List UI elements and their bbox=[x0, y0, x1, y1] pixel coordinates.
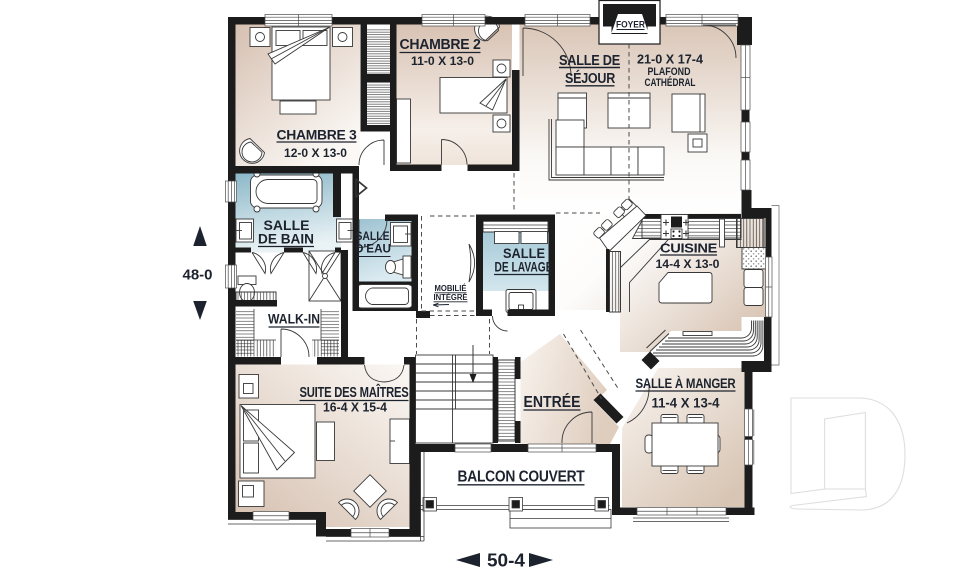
svg-text:14-4 X 13-0: 14-4 X 13-0 bbox=[656, 259, 720, 271]
svg-text:WALK-IN: WALK-IN bbox=[268, 311, 320, 327]
svg-text:CHAMBRE 3: CHAMBRE 3 bbox=[277, 128, 358, 143]
svg-text:48-0: 48-0 bbox=[183, 268, 213, 284]
svg-text:BALCON COUVERT: BALCON COUVERT bbox=[458, 469, 585, 486]
svg-text:ENTRÉE: ENTRÉE bbox=[524, 394, 581, 411]
svg-text:11-4 X 13-4: 11-4 X 13-4 bbox=[652, 396, 720, 411]
svg-text:DE BAIN: DE BAIN bbox=[258, 231, 314, 247]
svg-text:16-4 X 15-4: 16-4 X 15-4 bbox=[323, 401, 387, 415]
svg-text:INTÉGRÉ: INTÉGRÉ bbox=[434, 293, 469, 302]
svg-text:21-0 X 17-4: 21-0 X 17-4 bbox=[637, 52, 704, 67]
svg-text:50-4: 50-4 bbox=[487, 551, 525, 569]
svg-text:DE LAVAGE: DE LAVAGE bbox=[495, 259, 553, 275]
svg-text:CUISINE: CUISINE bbox=[660, 241, 718, 256]
svg-text:CHAMBRE 2: CHAMBRE 2 bbox=[400, 37, 481, 53]
svg-text:SUITE DES MAÎTRES: SUITE DES MAÎTRES bbox=[300, 383, 409, 401]
svg-text:SALLE À MANGER: SALLE À MANGER bbox=[636, 375, 736, 391]
svg-text:SALLE DE: SALLE DE bbox=[559, 53, 621, 69]
svg-text:MOBILIÉ: MOBILIÉ bbox=[435, 284, 468, 293]
svg-text:D'EAU: D'EAU bbox=[355, 242, 391, 256]
svg-text:11-0 X 13-0: 11-0 X 13-0 bbox=[411, 56, 474, 68]
svg-text:CATHÉDRAL: CATHÉDRAL bbox=[645, 76, 696, 89]
svg-text:12-0 X 13-0: 12-0 X 13-0 bbox=[284, 148, 347, 160]
svg-text:SÉJOUR: SÉJOUR bbox=[565, 70, 616, 87]
svg-text:FOYER: FOYER bbox=[616, 20, 645, 31]
